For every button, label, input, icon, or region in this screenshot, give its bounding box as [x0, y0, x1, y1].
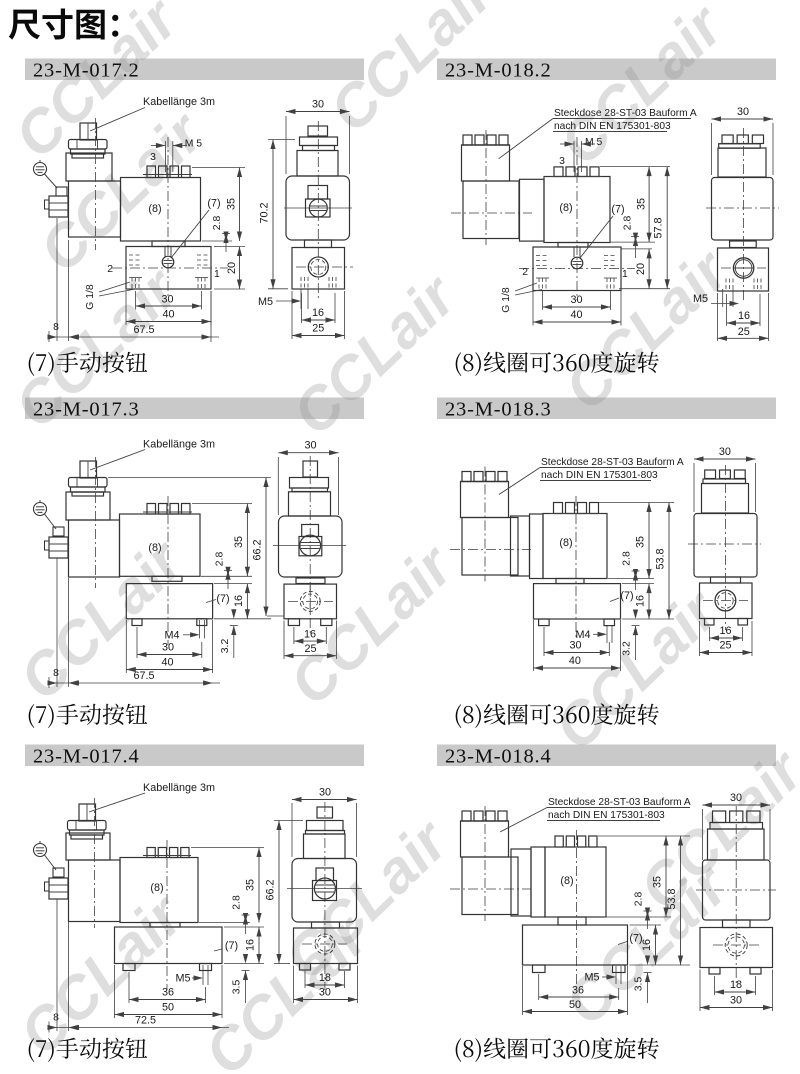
svg-text:nach DIN EN 175301-803: nach DIN EN 175301-803 [548, 810, 665, 821]
svg-text:30: 30 [312, 99, 324, 111]
svg-text:2.8: 2.8 [214, 552, 225, 567]
svg-text:16: 16 [245, 939, 257, 951]
svg-text:16: 16 [312, 307, 324, 319]
svg-text:40: 40 [570, 309, 582, 321]
svg-text:35: 35 [652, 876, 664, 888]
svg-text:35: 35 [226, 198, 238, 210]
svg-text:(8): (8) [148, 203, 161, 215]
svg-text:30: 30 [570, 294, 582, 306]
svg-text:25: 25 [738, 326, 750, 338]
svg-text:Kabellänge 3m: Kabellänge 3m [143, 782, 215, 794]
svg-text:18: 18 [319, 972, 331, 984]
svg-text:30: 30 [730, 995, 742, 1007]
svg-text:(7): (7) [611, 204, 624, 216]
svg-text:30: 30 [569, 640, 581, 652]
svg-text:(7): (7) [620, 590, 633, 602]
svg-text:16: 16 [738, 310, 750, 322]
svg-text:8: 8 [53, 322, 59, 333]
svg-text:40: 40 [161, 657, 173, 669]
svg-text:(7): (7) [216, 593, 229, 605]
svg-text:35: 35 [233, 536, 245, 548]
svg-text:1: 1 [622, 269, 628, 280]
svg-text:66.2: 66.2 [252, 539, 264, 560]
svg-text:2.8: 2.8 [623, 216, 634, 231]
svg-text:57.8: 57.8 [653, 217, 665, 238]
svg-text:M4: M4 [165, 630, 180, 642]
svg-text:1: 1 [214, 269, 220, 280]
svg-text:25: 25 [304, 643, 316, 655]
svg-text:3.5: 3.5 [232, 980, 243, 995]
svg-text:50: 50 [162, 1002, 174, 1014]
svg-text:2.8: 2.8 [232, 895, 243, 910]
svg-text:(8): (8) [560, 875, 573, 887]
svg-text:Kabellänge 3m: Kabellänge 3m [143, 96, 215, 108]
svg-text:3.2: 3.2 [622, 641, 633, 656]
svg-text:35: 35 [635, 536, 647, 548]
svg-text:16: 16 [719, 625, 731, 637]
svg-text:2.8: 2.8 [634, 892, 645, 907]
svg-text:20: 20 [635, 263, 647, 275]
svg-text:M5: M5 [693, 293, 708, 305]
svg-text:25: 25 [719, 640, 731, 652]
svg-text:(8): (8) [150, 882, 163, 894]
svg-text:23-M-018.4: 23-M-018.4 [445, 746, 552, 768]
svg-text:(8): (8) [559, 202, 572, 214]
svg-text:nach DIN EN 175301-803: nach DIN EN 175301-803 [554, 121, 671, 132]
svg-text:M5: M5 [258, 296, 273, 308]
svg-text:30: 30 [162, 642, 174, 654]
svg-text:(7): (7) [225, 940, 238, 952]
svg-text:2.8: 2.8 [622, 551, 633, 566]
svg-text:nach DIN EN 175301-803: nach DIN EN 175301-803 [541, 470, 658, 481]
svg-text:M5: M5 [585, 972, 600, 984]
svg-text:30: 30 [304, 440, 316, 452]
svg-text:16: 16 [304, 628, 316, 640]
svg-text:Steckdose 28-ST-03 Bauform A: Steckdose 28-ST-03 Bauform A [548, 797, 691, 808]
svg-text:3.2: 3.2 [220, 639, 231, 654]
svg-text:M5: M5 [176, 973, 191, 985]
svg-text:G 1/8: G 1/8 [501, 287, 512, 313]
svg-text:30: 30 [737, 106, 749, 118]
svg-text:30: 30 [319, 987, 331, 999]
svg-text:23-M-018.2: 23-M-018.2 [445, 60, 552, 82]
svg-text:25: 25 [312, 323, 324, 335]
svg-text:30: 30 [319, 787, 331, 799]
svg-text:23-M-017.3: 23-M-017.3 [33, 399, 140, 421]
svg-text:53.8: 53.8 [666, 888, 678, 909]
svg-text:35: 35 [636, 198, 648, 210]
svg-text:16: 16 [641, 939, 653, 951]
svg-text:M 5: M 5 [185, 139, 203, 150]
svg-text:3: 3 [559, 156, 565, 167]
svg-text:Kabellänge 3m: Kabellänge 3m [143, 439, 215, 451]
svg-text:36: 36 [572, 985, 584, 997]
svg-text:2.8: 2.8 [212, 216, 223, 231]
svg-text:30: 30 [719, 446, 731, 458]
svg-text:50: 50 [569, 999, 581, 1011]
svg-text:Steckdose 28-ST-03 Bauform A: Steckdose 28-ST-03 Bauform A [541, 457, 684, 468]
svg-text:53.8: 53.8 [655, 548, 667, 569]
svg-text:40: 40 [162, 309, 174, 321]
svg-text:40: 40 [569, 655, 581, 667]
svg-text:30: 30 [730, 792, 742, 804]
svg-text:G 1/8: G 1/8 [85, 284, 96, 310]
svg-text:2: 2 [522, 267, 528, 278]
svg-text:23-M-017.4: 23-M-017.4 [33, 746, 140, 768]
svg-text:72.5: 72.5 [135, 1015, 156, 1027]
svg-text:3.5: 3.5 [634, 977, 645, 992]
svg-text:67.5: 67.5 [133, 670, 154, 682]
svg-text:8: 8 [53, 668, 59, 679]
svg-text:66.2: 66.2 [265, 879, 277, 900]
svg-text:16: 16 [635, 595, 647, 607]
svg-text:18: 18 [730, 979, 742, 991]
svg-text:(8): (8) [148, 542, 161, 554]
svg-text:23-M-017.2: 23-M-017.2 [33, 60, 140, 82]
svg-text:20: 20 [226, 262, 238, 274]
svg-text:30: 30 [161, 294, 173, 306]
svg-text:36: 36 [162, 987, 174, 999]
svg-text:23-M-018.3: 23-M-018.3 [445, 399, 552, 421]
svg-text:35: 35 [245, 879, 257, 891]
svg-text:16: 16 [233, 595, 245, 607]
svg-text:(8): (8) [559, 537, 572, 549]
svg-text:(7): (7) [207, 198, 220, 210]
svg-text:70.2: 70.2 [259, 202, 271, 223]
svg-text:2: 2 [107, 264, 113, 275]
svg-text:67.5: 67.5 [133, 324, 154, 336]
svg-text:3: 3 [150, 152, 156, 163]
svg-text:8: 8 [53, 1013, 59, 1024]
svg-text:Steckdose 28-ST-03 Bauform A: Steckdose 28-ST-03 Bauform A [554, 108, 697, 119]
